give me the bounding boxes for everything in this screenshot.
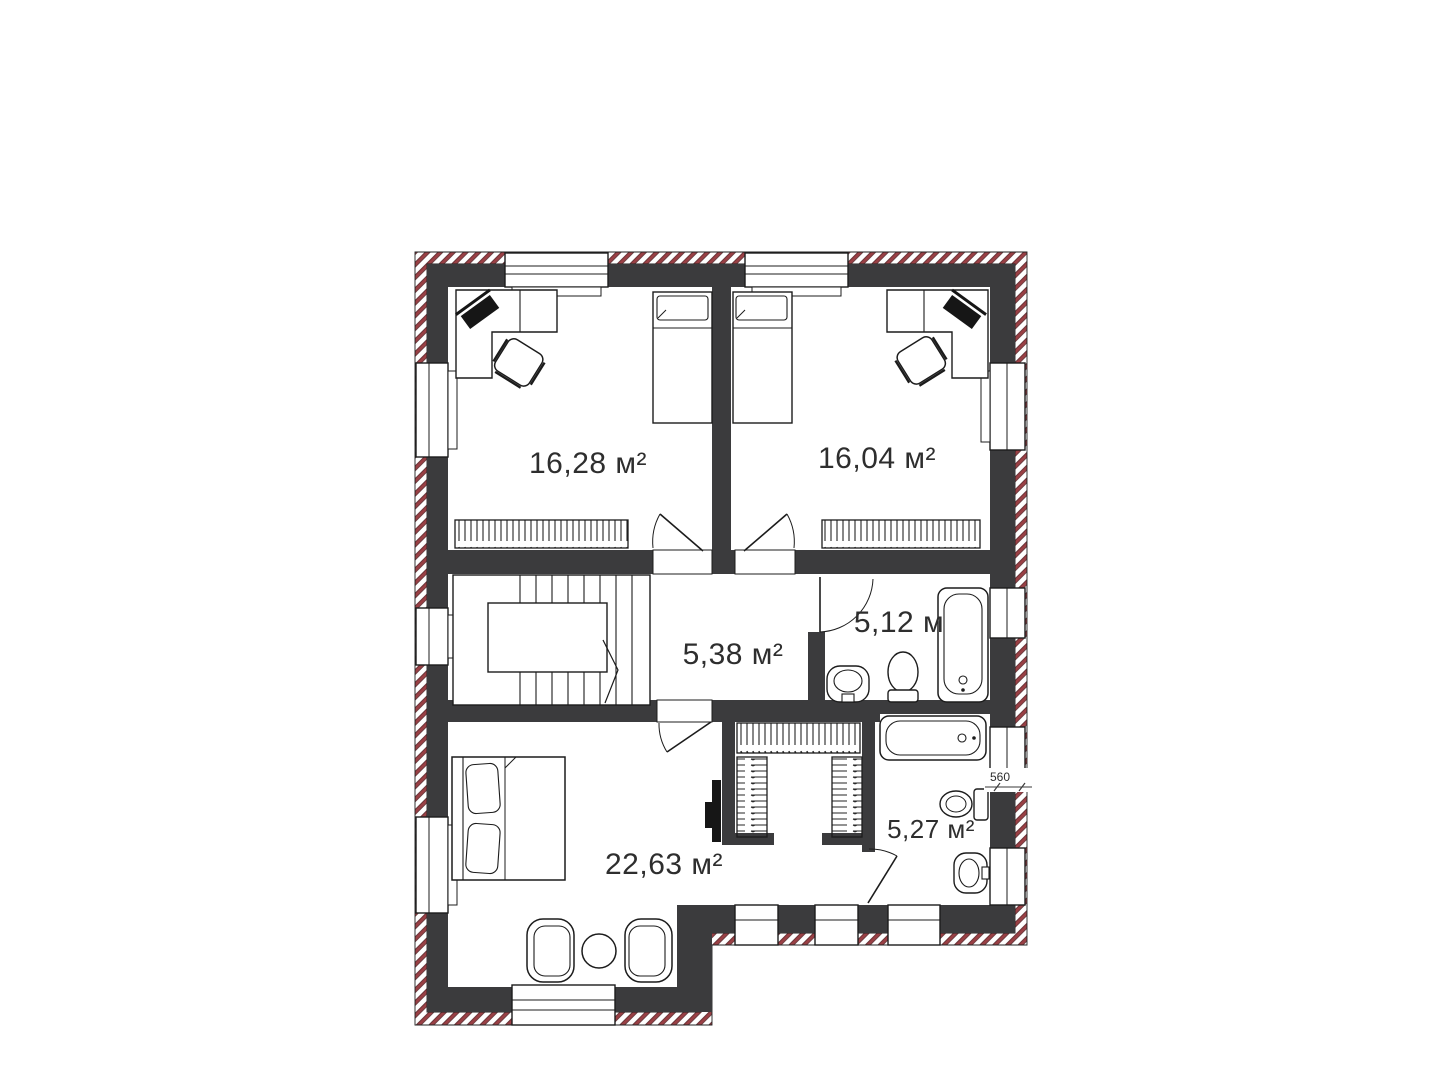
sink (827, 666, 869, 702)
window-top-right (745, 253, 848, 296)
walk-in-closet (737, 723, 862, 837)
tv-panel (705, 780, 721, 842)
window-right-bath-lower-b (990, 848, 1025, 905)
wall-under-bedrooms (427, 550, 1015, 574)
door-bedroom-right (744, 514, 794, 551)
pillow (736, 296, 787, 320)
label-bedroom-top-left: 16,28 м² (529, 447, 647, 480)
bathtub (880, 716, 986, 760)
closet-rack-top (737, 723, 860, 753)
floor-plan-page: 560 16,28 м² 16,04 м² 5,38 м² 5,12 м (0, 0, 1440, 1080)
stair-landing (488, 603, 607, 672)
window-left-bedroom (416, 363, 457, 457)
pillow (465, 823, 500, 874)
closet-rack-left (737, 757, 767, 837)
closet-rack-right (832, 757, 862, 837)
wall-closet-right (862, 714, 875, 852)
window-left-stairs (416, 608, 457, 665)
wall-bedroom-divider (712, 287, 731, 574)
pillow (465, 763, 500, 814)
window-bottom-corridor-a (735, 905, 778, 945)
double-bed (452, 757, 565, 880)
opening-bedroom-right (735, 550, 795, 574)
single-bed (733, 292, 792, 423)
staircase (453, 575, 650, 705)
wall-closet-left (722, 722, 735, 844)
sink (954, 853, 989, 893)
armchair-left (527, 919, 574, 982)
wardrobe-rail (822, 520, 980, 548)
window-bottom-bath (888, 905, 940, 945)
door-bedroom-left (653, 514, 703, 551)
bathtub (938, 588, 988, 702)
window-bottom-master (512, 985, 615, 1025)
bedroom-top-right-furniture (733, 290, 988, 548)
window-left-master (416, 817, 457, 913)
door-bathroom-lower (868, 849, 897, 903)
dimension-560-label: 560 (990, 770, 1010, 784)
door-master-bedroom (659, 722, 711, 752)
door-openings (653, 550, 795, 722)
window-right-bath-upper (990, 588, 1025, 638)
single-bed (653, 292, 712, 423)
window-right-bath-lower-a (990, 727, 1025, 772)
label-bathroom-lower: 5,27 м² (887, 814, 975, 844)
wall-hall-bath (808, 632, 825, 700)
office-chair (489, 335, 547, 391)
label-bedroom-top-right: 16,04 м² (818, 442, 936, 475)
window-bottom-corridor-b (815, 905, 858, 945)
pillow (657, 296, 708, 320)
wardrobe-rail (455, 520, 628, 548)
bedroom-top-left-furniture (455, 290, 712, 548)
toilet (888, 652, 918, 702)
office-chair (893, 333, 951, 389)
wall-bath-divider (862, 700, 1015, 714)
dimension-560: 560 (984, 768, 1032, 792)
floor-plan-drawing: 560 16,28 м² 16,04 м² 5,38 м² 5,12 м (0, 0, 1440, 1080)
opening-bedroom-left (653, 550, 712, 574)
label-bedroom-master: 22,63 м² (605, 848, 723, 881)
opening-master (657, 700, 712, 722)
coffee-table (582, 934, 616, 968)
armchair-right (625, 919, 672, 982)
label-hallway: 5,38 м² (683, 638, 784, 671)
label-bathroom-upper: 5,12 м (854, 606, 944, 639)
